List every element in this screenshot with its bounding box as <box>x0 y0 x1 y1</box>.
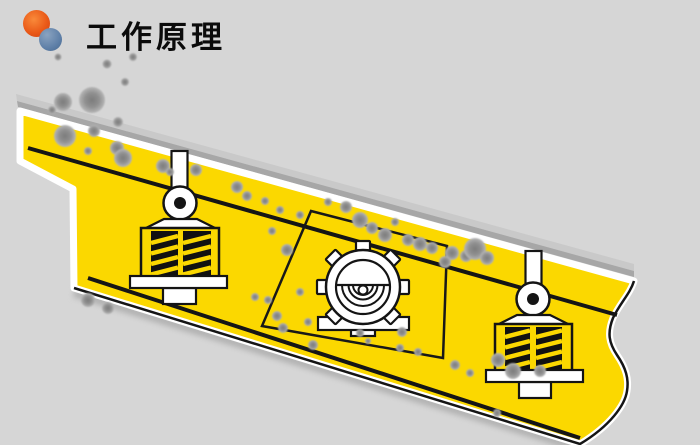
particle <box>304 318 312 326</box>
vibration-exciter <box>317 241 409 336</box>
base-stem-right <box>519 382 551 398</box>
particle <box>396 344 404 352</box>
header: 工作原理 <box>0 0 260 70</box>
particle <box>480 251 494 265</box>
base-stem-left <box>163 288 196 304</box>
particle <box>340 201 352 213</box>
particle <box>268 227 276 235</box>
particle <box>81 293 95 307</box>
page-title: 工作原理 <box>86 12 226 57</box>
particle <box>190 164 202 176</box>
particle <box>296 211 304 219</box>
particle <box>296 288 304 296</box>
particle <box>242 191 252 201</box>
particle <box>450 360 460 370</box>
particle <box>397 327 407 337</box>
particle <box>88 125 100 137</box>
logo-blue-circle-icon <box>39 28 62 51</box>
particle <box>352 212 368 228</box>
particle <box>231 181 243 193</box>
particle <box>505 363 521 379</box>
particle <box>366 222 378 234</box>
particle <box>276 206 284 214</box>
particle <box>79 87 105 113</box>
particle <box>365 338 371 344</box>
base-plate-left <box>130 276 227 288</box>
particle <box>466 369 474 377</box>
particle <box>414 348 422 356</box>
particle <box>54 125 76 147</box>
particle <box>281 244 293 256</box>
particle <box>391 218 399 226</box>
particle <box>114 149 132 167</box>
particle <box>493 409 501 417</box>
particle <box>308 340 318 350</box>
particle <box>84 147 92 155</box>
particle <box>278 323 288 333</box>
pivot-dot-right <box>527 293 539 305</box>
particle <box>491 353 505 367</box>
particle <box>272 311 282 321</box>
particle <box>439 256 451 268</box>
particle <box>378 228 392 242</box>
particle <box>413 237 427 251</box>
particle <box>402 234 414 246</box>
particle <box>324 198 332 206</box>
particle <box>261 197 269 205</box>
particle <box>113 117 123 127</box>
particle <box>102 302 114 314</box>
particle <box>356 329 364 337</box>
particle <box>54 93 72 111</box>
particle <box>48 106 56 114</box>
particle <box>264 296 272 304</box>
particle <box>251 293 259 301</box>
particle <box>534 365 546 377</box>
particle <box>121 78 129 86</box>
particle <box>426 242 438 254</box>
particle <box>166 168 174 176</box>
diagram-page: 工作原理 <box>0 0 700 445</box>
pivot-dot-left <box>174 197 186 209</box>
